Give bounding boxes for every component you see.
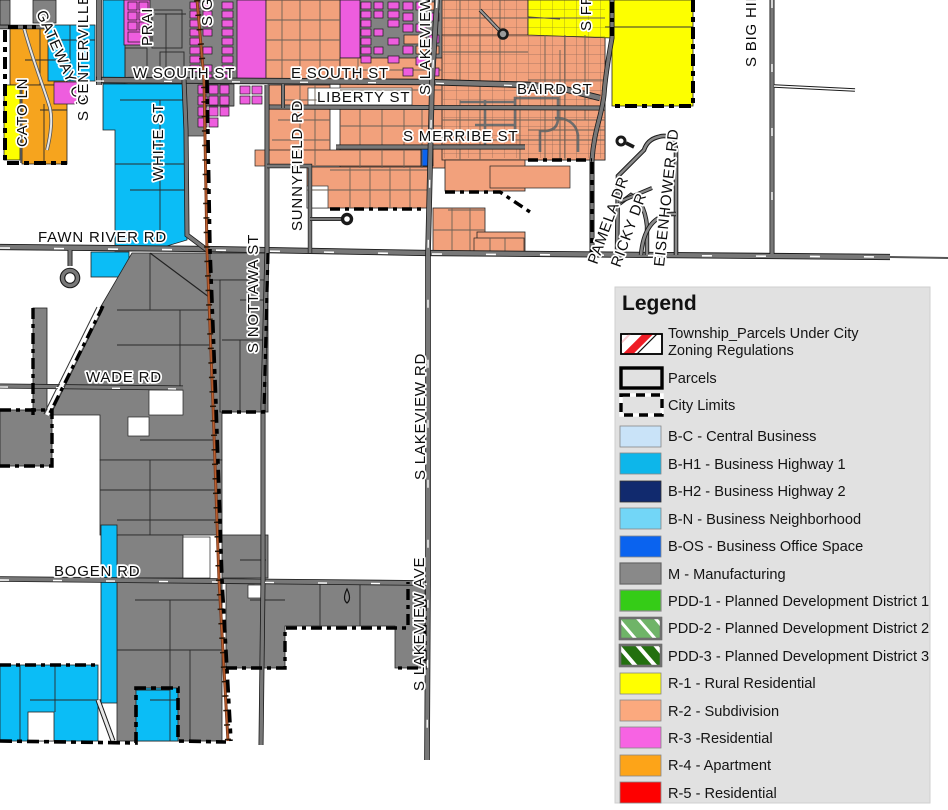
svg-text:City Limits: City Limits — [668, 398, 735, 414]
svg-text:Parcels: Parcels — [668, 371, 717, 387]
svg-text:S LAKEVIEW RD: S LAKEVIEW RD — [412, 353, 429, 480]
svg-text:FAWN RIVER RD: FAWN RIVER RD — [38, 229, 167, 246]
svg-text:Legend: Legend — [622, 292, 697, 315]
svg-text:CATO LN: CATO LN — [14, 78, 31, 147]
svg-text:S BIG HILL: S BIG HILL — [743, 0, 760, 67]
svg-text:Zoning Regulations: Zoning Regulations — [668, 343, 794, 359]
svg-text:BAIRD ST: BAIRD ST — [517, 81, 593, 98]
svg-text:R-1 - Rural Residential: R-1 - Rural Residential — [668, 676, 816, 692]
svg-text:R-4 - Apartment: R-4 - Apartment — [668, 758, 771, 774]
svg-text:B-H1 - Business Highway 1: B-H1 - Business Highway 1 — [668, 457, 846, 473]
svg-text:WHITE ST: WHITE ST — [150, 103, 167, 181]
svg-text:BOGEN RD: BOGEN RD — [54, 563, 140, 580]
svg-text:PDD-3 - Planned Development Di: PDD-3 - Planned Development District 3 — [668, 649, 929, 665]
svg-text:S FR: S FR — [578, 0, 595, 31]
svg-text:S CENTERVILLE: S CENTERVILLE — [75, 0, 92, 121]
svg-text:PDD-2 - Planned Development Di: PDD-2 - Planned Development District 2 — [668, 621, 929, 637]
svg-text:S LAKEVIEW AVE: S LAKEVIEW AVE — [411, 557, 428, 691]
svg-text:R-2 - Subdivision: R-2 - Subdivision — [668, 704, 779, 720]
svg-text:PRAI: PRAI — [139, 8, 156, 46]
svg-text:B-N - Business Neighborhood: B-N - Business Neighborhood — [668, 512, 861, 528]
svg-text:PDD-1 - Planned Development Di: PDD-1 - Planned Development District 1 — [668, 594, 929, 610]
svg-text:S NOTTAWA ST: S NOTTAWA ST — [245, 234, 262, 353]
svg-text:WADE RD: WADE RD — [86, 369, 162, 386]
svg-text:E SOUTH ST: E SOUTH ST — [291, 65, 389, 82]
svg-text:SUNNYFIELD RD: SUNNYFIELD RD — [289, 100, 306, 231]
svg-text:B-H2 - Business Highway 2: B-H2 - Business Highway 2 — [668, 484, 846, 500]
svg-text:S G: S G — [199, 0, 216, 26]
svg-text:Township_Parcels Under City: Township_Parcels Under City — [668, 326, 859, 342]
svg-text:LIBERTY ST: LIBERTY ST — [317, 89, 410, 106]
svg-text:W SOUTH ST: W SOUTH ST — [133, 65, 235, 82]
svg-text:R-3 -Residential: R-3 -Residential — [668, 731, 773, 747]
svg-text:B-OS - Business Office Space: B-OS - Business Office Space — [668, 539, 863, 555]
svg-text:B-C - Central Business: B-C - Central Business — [668, 429, 816, 445]
svg-text:R-5 - Residential: R-5 - Residential — [668, 786, 777, 802]
svg-text:S MERRIBE ST: S MERRIBE ST — [403, 128, 518, 145]
svg-text:S LAKEVIEW: S LAKEVIEW — [417, 0, 434, 95]
svg-text:M - Manufacturing: M - Manufacturing — [668, 567, 786, 583]
